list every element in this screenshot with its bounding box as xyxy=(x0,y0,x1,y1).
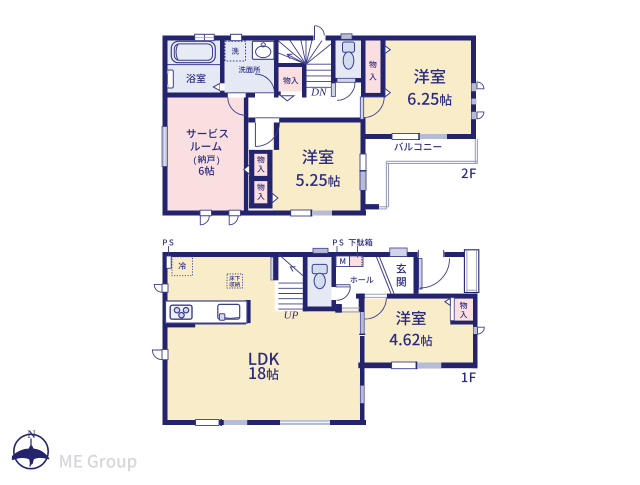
svg-text:DN: DN xyxy=(310,86,327,98)
svg-text:UP: UP xyxy=(284,310,299,322)
svg-text:N: N xyxy=(27,429,36,441)
svg-text:): ) xyxy=(217,155,220,166)
